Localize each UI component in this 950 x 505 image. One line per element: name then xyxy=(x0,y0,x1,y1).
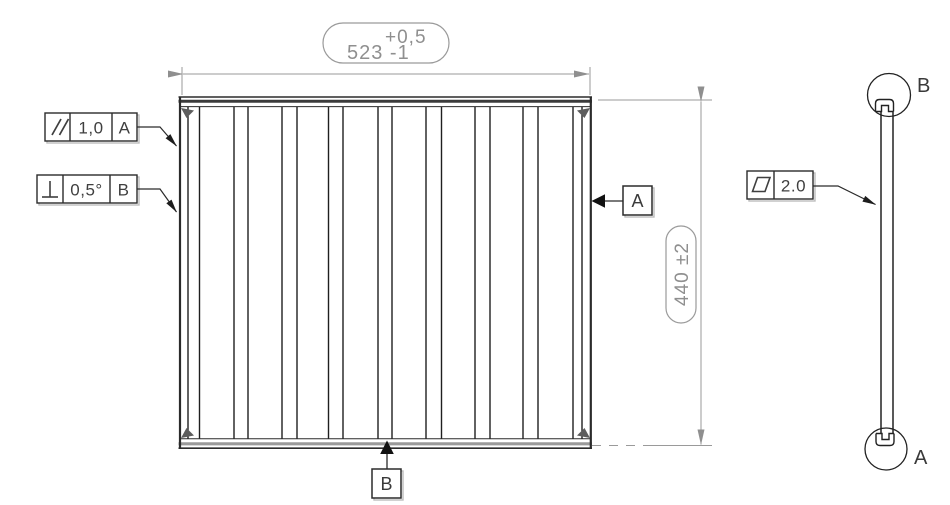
height-dimension-value: 440 ±2 xyxy=(672,242,693,306)
fcf-parallelism-leader xyxy=(137,127,177,146)
fcf-perpendicularity-datum: B xyxy=(118,181,130,200)
side-top-clip xyxy=(876,100,894,112)
panel-outline xyxy=(179,97,593,449)
fcf-perpendicularity: 0,5° B xyxy=(37,175,177,212)
detail-circle-top-label: B xyxy=(917,75,930,97)
fcf-perpendicularity-leader xyxy=(137,189,177,212)
panel-side-view: B A 2.0 xyxy=(747,74,930,471)
fcf-parallelism: 1,0 A xyxy=(45,113,177,146)
fcf-parallelism-datum: A xyxy=(119,119,131,138)
datum-a-triangle xyxy=(592,194,606,208)
technical-drawing-svg: +0,5 523 -1 440 ±2 1,0 A xyxy=(0,0,950,505)
fcf-parallelism-value: 1,0 xyxy=(78,119,103,138)
fcf-perpendicularity-value: 0,5° xyxy=(70,181,102,200)
detail-circle-bottom-label: A xyxy=(914,447,928,469)
fcf-flatness: 2.0 xyxy=(747,171,876,205)
panel-corner-marks xyxy=(181,108,590,438)
datum-a-label: A xyxy=(631,191,643,211)
drawing-canvas: +0,5 523 -1 440 ±2 1,0 A xyxy=(0,0,950,505)
height-dimension: 440 ±2 xyxy=(592,100,712,446)
panel-front-view: +0,5 523 -1 440 ±2 1,0 A xyxy=(37,23,712,500)
corner-mark-top-right xyxy=(577,108,590,118)
side-bottom-clip xyxy=(876,434,894,446)
datum-b-flag: B xyxy=(372,441,403,501)
datum-a-flag: A xyxy=(592,186,655,217)
width-dimension-value: 523 -1 xyxy=(347,42,410,64)
width-dimension: +0,5 523 -1 xyxy=(182,23,590,95)
corner-mark-bottom-right xyxy=(577,428,590,438)
corner-mark-bottom-left xyxy=(181,428,194,438)
fcf-flatness-leader xyxy=(813,186,876,205)
corner-mark-top-left xyxy=(181,108,194,118)
panel-fins xyxy=(188,107,582,439)
datum-b-label: B xyxy=(380,474,392,494)
fcf-flatness-value: 2.0 xyxy=(781,177,806,196)
detail-circle-bottom xyxy=(865,428,907,470)
